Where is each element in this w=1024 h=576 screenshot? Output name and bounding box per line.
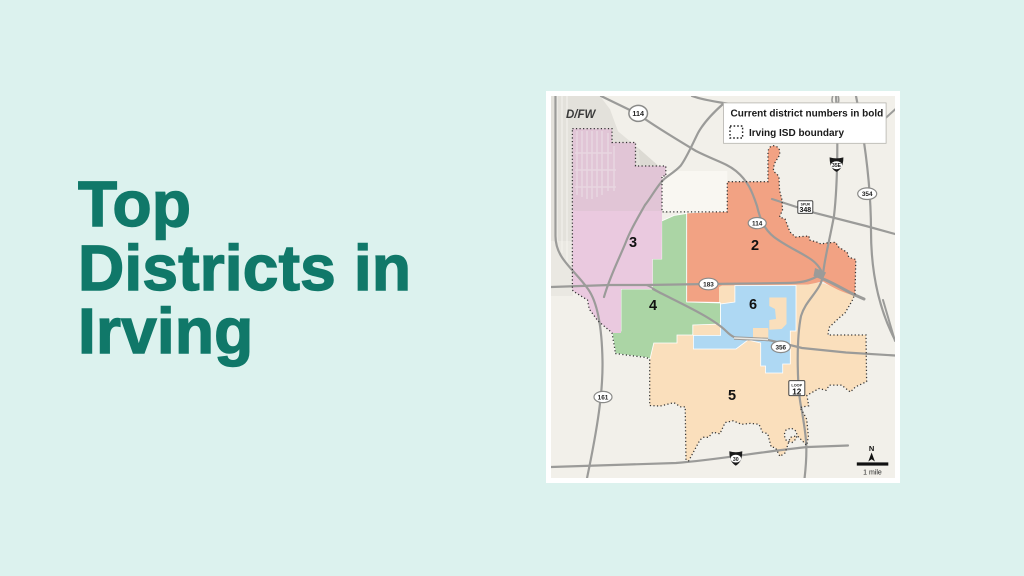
svg-text:1 mile: 1 mile [863,470,882,477]
svg-text:SPUR: SPUR [801,203,811,207]
svg-text:30: 30 [733,457,739,463]
svg-text:N: N [869,444,874,453]
svg-text:356: 356 [775,344,786,351]
svg-text:114: 114 [752,221,763,228]
svg-text:114: 114 [632,109,644,118]
svg-text:Current district numbers in bo: Current district numbers in bold [731,109,884,120]
svg-text:35E: 35E [832,163,842,169]
svg-text:348: 348 [799,207,811,214]
svg-text:183: 183 [703,282,714,289]
svg-text:3: 3 [629,235,637,251]
svg-text:4: 4 [649,298,657,314]
svg-text:354: 354 [862,191,873,198]
svg-text:2: 2 [751,238,759,254]
svg-text:161: 161 [598,395,609,402]
svg-text:Irving ISD boundary: Irving ISD boundary [749,128,844,139]
svg-text:D/FW: D/FW [566,109,597,121]
svg-text:5: 5 [728,388,736,404]
svg-text:6: 6 [749,297,757,313]
svg-text:12: 12 [792,388,802,397]
